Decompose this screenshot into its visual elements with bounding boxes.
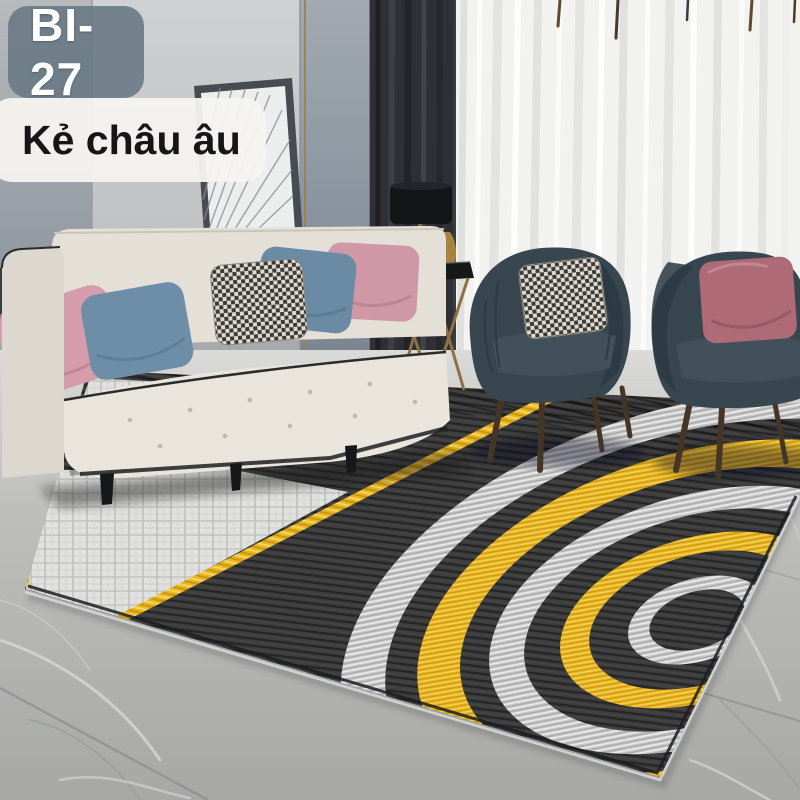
pillow-blue-left — [78, 280, 195, 383]
product-name-text: Kẻ châu âu — [22, 117, 241, 164]
pillow-mauve — [698, 256, 797, 344]
model-code-badge: BI-27 — [8, 6, 144, 98]
pillow-houndstooth — [210, 258, 309, 346]
product-photo: BI-27 Kẻ châu âu — [0, 0, 800, 800]
product-name-badge: Kẻ châu âu — [0, 98, 266, 182]
sofa-arm-left — [2, 247, 64, 478]
model-code-text: BI-27 — [30, 0, 144, 106]
pillow-houndstooth-chair — [518, 256, 608, 339]
armchair-right-cushion — [676, 335, 800, 383]
